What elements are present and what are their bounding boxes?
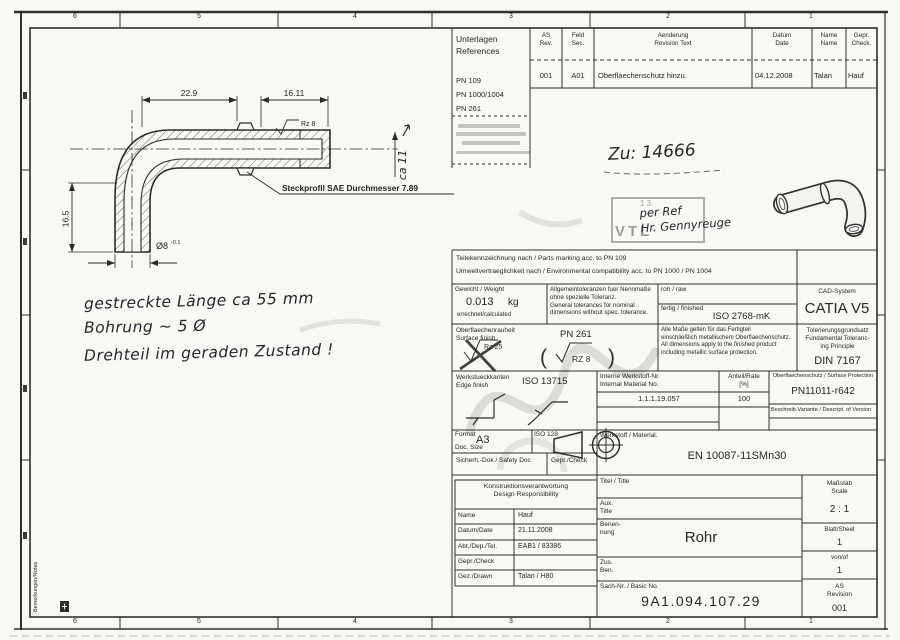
internal-material-value: 1.1.1.19.057 [600,394,718,403]
zu-underline [604,170,724,174]
weight-unit: kg [508,297,532,310]
cad-system-value: CATIA V5 [797,300,877,319]
parts-marking-label: Teilekennzeichnung nach / Parts marking … [456,253,794,279]
grid-number-bottom: 6 [65,618,85,627]
resp-row-value: 21.11.2008 [518,527,596,536]
scale-label: Maßstab Scale [804,480,875,496]
surface-finish-label: Oberflaechenrauheit Surface finish [456,327,536,343]
weight-method: errechnet/calculated [457,312,547,320]
resp-row-label: Gez./Drawn [458,573,513,581]
of-label: von/of [804,554,875,562]
grid-number-top: 3 [501,13,521,22]
grid-number-top: 6 [65,13,85,22]
grid-number-top: 2 [658,13,678,22]
revision-header-sec: Feld Sec. [562,32,594,48]
designation-value: Rohr [600,529,802,548]
grid-number-bottom: 1 [801,618,821,627]
revision-row-rev: 001 [530,71,562,80]
weight-value: 0.013 [466,296,511,310]
revision-header-check: Gepr. Check. [846,32,877,48]
rate-value: 100 [720,394,768,403]
side-note-vertical: Bemerkungen/Notes [33,516,40,612]
internal-material-label: Interne Werkstoff-Nr. Internal Material … [600,373,710,389]
grid-number-top: 4 [345,13,365,22]
additional-designation-label: Zus. Ben. [600,559,640,575]
title-label: Titel / Title [600,478,670,486]
safety-doc-label: Sicherh.-Dok / Safety Doc [456,457,548,465]
resp-row-label: Abt./Dep./Tel. [458,543,513,551]
revision-row-check: Hauf [848,71,877,80]
check-label: Gepr./Check [551,457,596,465]
revision-row-text: Oberflaechenschutz hinzu. [598,71,752,80]
basic-number-label: Sach-Nr. / Basic No. [600,583,710,591]
grid-number-top: 1 [801,13,821,22]
material-value: EN 10087-11SMn30 [622,450,852,464]
raw-label: roh / raw [661,286,731,294]
resp-row-value: EAB1 / 83386 [518,543,596,552]
as-revision-value: 001 [804,603,875,614]
edge-finish-standard: ISO 13715 [522,376,582,388]
grid-number-top: 5 [189,13,209,22]
resp-row-value: Talan / H80 [518,573,596,582]
reference-item: PN 109 [456,76,528,85]
reference-item: PN 261 [456,104,528,113]
sheet-value: 1 [804,537,875,548]
grid-number-bottom: 5 [189,618,209,627]
surface-protection-label: Oberflaechenschutz / Surface Protection [770,373,876,380]
revision-header-date: Datum Date [752,32,812,48]
rate-label: Anteil/Rate [%] [721,373,767,389]
revision-row-date: 04.12.2008 [755,71,812,80]
reference-item: PN 1000/1004 [456,90,528,99]
surface-protection-value: PN11011-r642 [770,386,876,399]
as-revision-label: AS Revision [804,583,875,599]
material-label: Werkstoff / Material. [600,432,700,440]
of-value: 1 [804,565,875,576]
grid-number-bottom: 2 [658,618,678,627]
illegible-stamp-lines [456,124,530,154]
cad-system-label: CAD-System [798,288,876,296]
surface-finish-standard: PN 261 [560,329,615,341]
iso128-label: ISO 128 [534,431,574,439]
aux-title-label: Aux. Title [600,500,640,516]
general-tolerances-text: Allgemeintoleranzen fuer Nennmaße ohne s… [550,286,658,317]
revision-header-rev: AS Rev. [530,32,562,48]
grid-number-bottom: 4 [345,618,365,627]
tolerancing-principle-label: Tolerierungsgrundsatz Fundamental Tolera… [799,327,876,351]
tolerancing-principle-value: DIN 7167 [799,355,876,369]
resp-row-label: Name [458,512,513,520]
resp-row-label: Datum/Date [458,527,513,535]
revision-row-sec: A01 [562,71,594,80]
doc-size-label: Doc. Size [455,444,495,452]
resp-row-label: Gepr./Check [458,558,513,566]
resp-row-value: Hauf [518,512,596,521]
grid-number-bottom: 3 [501,618,521,627]
scale-value: 2 : 1 [804,504,875,517]
revision-header-text: Aenderung Revision Text [594,32,752,48]
variant-description-label: Beschreib.Variante / Descript. of Versio… [771,407,877,414]
references-title: Unterlagen References [456,33,528,58]
sheet-label: Blatt/Sheet [804,526,875,534]
weight-label: Gewicht / Weight [455,286,545,294]
revision-header-name: Name Name [812,32,846,48]
basic-number-value: 9A1.094.107.29 [608,593,794,611]
scanned-engineering-drawing: 22.9 16.11 Rz 8 16.5 Ø8 -0.1 ca 11 Steck… [0,0,900,640]
finished-value: ISO 2768-mK [688,311,795,323]
design-responsibility-header: Konstruktionsverantwortung Design Respon… [457,483,595,500]
revision-row-name: Talan [814,71,846,80]
all-dimensions-note: Alle Maße gelten für das Fertigteil eins… [661,327,799,357]
handwritten-note: Bohrung ~ 5 Ø [84,315,304,337]
